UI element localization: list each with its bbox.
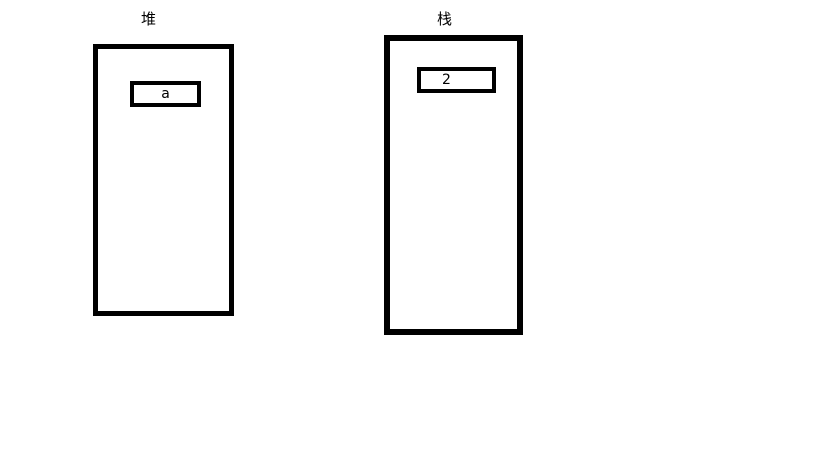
heap-label: 堆	[141, 10, 156, 28]
heap-slot: a	[130, 81, 201, 107]
stack-slot-value: 2	[442, 73, 451, 87]
diagram-canvas: 堆 a 栈 2	[0, 0, 819, 460]
stack-label: 栈	[437, 10, 452, 28]
stack-slot: 2	[417, 67, 496, 93]
heap-slot-value: a	[161, 87, 170, 101]
